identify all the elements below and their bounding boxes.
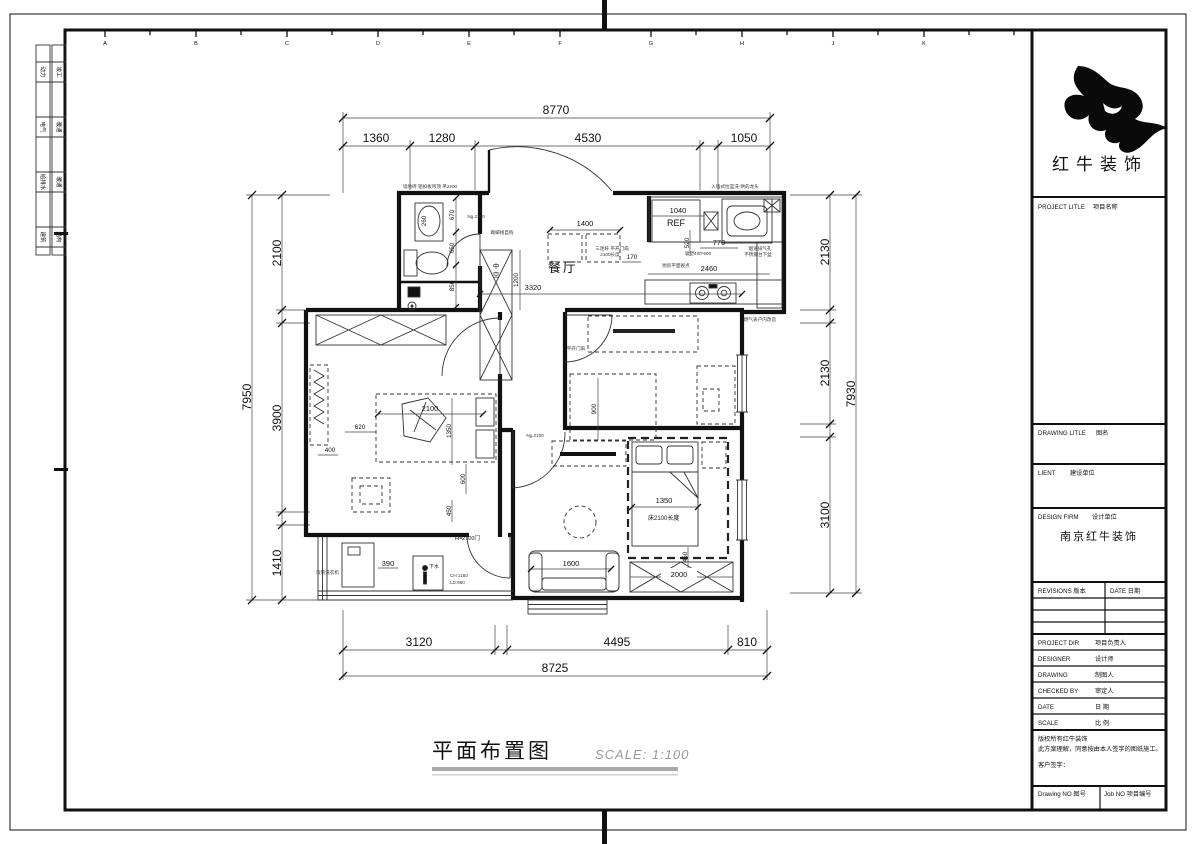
plan-labels: 餐厅 中 空 REF 床2100长度 H=2100门 下水 墙地砖 铝扣板吊顶 … [316,183,776,585]
dim-620: 620 [355,424,366,431]
row-label-en: PROJECT DIR [1038,640,1080,647]
dim-1040: 1040 [670,206,687,215]
round-table [564,506,596,538]
grid-letter: F [558,41,562,47]
dim-bottom-3120: 3120 [406,635,433,649]
void-label: 空 [493,270,499,279]
nightstand [702,442,726,468]
row-label-cn: 项目负责人 [1095,639,1126,647]
grid-letter: J [832,41,835,47]
row-label-cn: 日 期 [1095,703,1109,711]
pillow [476,430,494,458]
design-firm-value: 南京红牛装饰 [1060,529,1138,543]
note-kitchen-top: 入墙式拉篮洗-烘的龙头 [711,183,759,190]
dim-450: 450 [446,505,453,516]
dim-400: 400 [325,447,336,454]
dim-left-3900: 3900 [270,404,284,431]
title-block: 红牛装饰 PROJECT LITLE 项目名称 DRAWING LITLE 图名… [1032,30,1168,810]
walls [306,191,786,602]
design-firm-label-cn: 设计单位 [1092,513,1117,521]
row-label-en: DATE [1038,704,1054,711]
rednbull-logo-icon [1064,66,1168,153]
bottom-counter [645,280,782,304]
drawing-title-label-en: DRAWING LITLE [1038,430,1086,437]
dim-left-1410: 1410 [270,549,284,576]
grid-letter: B [194,41,198,47]
dim-850: 850 [449,280,456,291]
dim-2100: 2100 [422,404,439,413]
copyright-line1: 版权所有红牛装饰 [1038,735,1088,743]
bedroom-middle-furniture [570,316,735,440]
client-label-en: LIENT [1038,470,1056,477]
title-underline-thin [432,774,678,776]
dim-1600: 1600 [563,559,580,568]
tv-icon [560,452,616,456]
grid-letter: K [922,41,926,47]
sofa [529,551,619,592]
dim-2460: 2460 [701,264,718,273]
dim-bottom-4495: 4495 [604,635,631,649]
drain-box [413,556,443,590]
note-cabinet: 吸塑400*600 [685,250,712,257]
note-kitchen-view: 厨房平面视点 [662,262,690,269]
dim-260: 260 [421,215,428,226]
grid-letter: A [103,41,107,47]
toilet-icon [416,252,448,274]
dim-right-2130b: 2130 [818,359,832,386]
dim-1400: 1400 [577,219,594,228]
drawing-title-label-cn: 图名 [1096,429,1108,437]
dim-1200: 1200 [513,273,520,288]
project-label-cn: 项目名称 [1093,203,1118,211]
cabinet-box [352,478,390,512]
dim-right-3100: 3100 [818,501,832,528]
title-underline [432,767,678,771]
discipline-stamps: 动力 竣工 电气 暖通 给排水 暖通 建筑 结构 [36,45,66,255]
dim-top-total: 8770 [543,103,570,117]
client-label-cn: 建设单位 [1070,469,1095,477]
note-bath-ceiling: 墙地砖 铝扣板吊顶 吊2200 [403,183,458,190]
bedroom-left-furniture [310,365,496,512]
note-skirting: 踢脚线自购 [491,229,514,236]
dim-right-2130a: 2130 [818,238,832,265]
footer: 平面布置图 SCALE: 1:100 [432,739,689,776]
row-label-en: SCALE [1038,720,1058,727]
stamp-label: 给排水 [39,174,47,191]
dim-1350: 1350 [446,424,453,439]
note-ch: CH:1150 [450,573,468,578]
brand-name: 红牛装饰 [1052,155,1148,174]
note-sink: 不锈钢台下盆 [744,251,772,258]
dim-450b: 450 [682,551,689,562]
dim-left-total: 7950 [240,383,254,410]
note-vent: 烟道排气孔 [749,245,772,252]
dim-2000: 2000 [671,570,688,579]
dim-900: 900 [591,403,598,414]
dim-770: 770 [713,238,726,247]
row-label-cn: 比 例 [1095,719,1109,727]
void-label: 中 [493,261,499,270]
dim-left-2100: 2100 [270,239,284,266]
row-label-cn: 制图人 [1095,671,1114,679]
dim-top-4530: 4530 [575,131,602,145]
stamp-label: 暖通 [55,176,63,188]
dim-520: 520 [684,237,691,248]
pillow [667,446,693,464]
dim-right-total: 7930 [844,380,858,407]
dim-top-1280: 1280 [429,131,456,145]
dim-170: 170 [627,254,638,261]
fridge-label: REF [667,218,686,228]
dim-390: 390 [382,559,395,568]
job-no-label: Job NO 项目编号 [1104,790,1151,798]
drain-label: 下水 [429,563,439,570]
dim-1350b: 1350 [656,496,673,505]
drawing-sheet: A B C D E F G H J K 动力 竣工 电气 暖通 给排水 暖通 建… [0,0,1200,844]
stamp-label: 暖通 [55,121,63,133]
chair [703,389,719,411]
bed-length-note: 床2100长度 [648,514,679,522]
dim-top-1360: 1360 [363,131,390,145]
dimensions-outer: 8770 1360 1280 4530 1050 7950 2100 3900 … [240,103,862,680]
tv-icon [613,329,675,333]
stamp-label: 结构 [55,231,63,243]
kitchen-sink [727,206,767,236]
grid-letter: H [740,41,744,47]
grid-letter: E [467,41,471,47]
drawing-no-label: Drawing NO 图号 [1038,791,1086,798]
dim-650: 650 [449,242,456,253]
stamp-label: 动力 [39,66,47,77]
row-label-en: DRAWING [1038,672,1068,679]
note-washer: 滚筒洗衣机 [316,569,339,576]
stamp-label: 竣工 [55,66,63,78]
note-ld: LD:960 [450,580,465,585]
note-entry-door: 三连杆 平开门扇 [595,245,629,252]
note-mid-door: 平开门扇 [567,345,586,352]
row-label-en: CHECKED BY [1038,688,1078,695]
signature-label: 客户签字： [1038,761,1069,769]
pillow [636,446,662,464]
row-label-cn: 设计师 [1095,655,1114,663]
doors [442,147,612,578]
revisions-label: REVISIONS 版本 [1038,587,1086,595]
design-firm-label-en: DESIGN FIRM [1038,514,1079,521]
dim-bottom-total: 8725 [542,661,569,675]
bed3 [632,442,698,546]
dim-bottom-810: 810 [737,635,757,649]
grid-letter: C [285,41,289,47]
toilet-tank [404,250,417,276]
dining-table-half [548,234,582,262]
drawing-title: 平面布置图 [432,739,552,763]
dim-670: 670 [449,209,456,220]
note-ng2: Ng.2100 [526,433,544,438]
floor-plan-drawing: A B C D E F G H J K 动力 竣工 电气 暖通 给排水 暖通 建… [0,0,1200,844]
note-entry-door2: 2100长度 [600,251,620,258]
grid-letter: G [649,41,653,47]
project-label-en: PROJECT LITLE [1038,204,1085,211]
stamp-label: 建筑 [39,231,47,243]
room-label-dining: 餐厅 [548,260,578,275]
hatch-areas [316,250,733,592]
dim-top-1050: 1050 [731,131,758,145]
row-label-en: DESIGNER [1038,656,1071,663]
revisions-date-label: DATE 日期 [1110,587,1140,595]
washing-machine [342,543,374,587]
drawing-scale: SCALE: 1:100 [595,747,689,762]
radiator [310,365,328,445]
note-ng1: Ng.2100 [467,214,485,219]
stamp-label: 电气 [39,121,47,133]
dim-600: 600 [460,473,467,484]
bed-zone [628,438,728,558]
wardrobe-hatch [316,315,446,345]
copyright-line2: 此方案理解，同意按由本人签字的图纸施工。 [1038,745,1162,753]
door-height-note: H=2100门 [455,534,480,542]
sink-cabinet [415,203,443,241]
floor-box [408,287,420,297]
row-label-cn: 审定人 [1095,687,1114,695]
tv-cabinet [588,316,698,352]
note-gas: 燃气表户内改造 [744,316,777,323]
dim-3320: 3320 [525,283,542,292]
grid-letter-row: A B C D E F G H J K [103,30,1014,47]
grid-letter: D [376,41,380,47]
